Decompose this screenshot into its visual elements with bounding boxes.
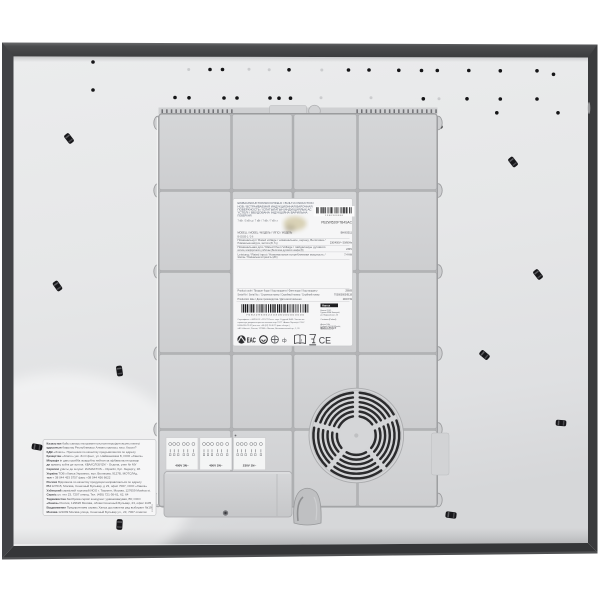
svg-text:«АО «Hansa», Россия, 127566 г.: «АО «Hansa», Россия, 127566 г. Москва, В…: [238, 327, 301, 330]
svg-text:ул. Варшавская, 25: ул. Варшавская, 25: [321, 315, 338, 317]
svg-text:Москва 121099 Москва улица, Со: Москва 121099 Москва улица, Сонечный Бул…: [47, 510, 147, 514]
svg-text:ЕАС: ЕАС: [247, 336, 256, 345]
svg-text:7 6 8 2 2 9 6 3 6 2 2 0 3 0 6: 7 6 8 2 2 9 6 3 6 2 2 0 3 0 6 0 0 0 0 0 …: [246, 314, 305, 316]
svg-text:400V 2N~: 400V 2N~: [209, 464, 223, 468]
svg-text:8-800-234-72-97 (или тел. +48: 8-800-234-72-97 (или тел. +48 (67) 25 46…: [238, 324, 290, 327]
svg-text:ф: ф: [282, 338, 287, 344]
svg-text:230V 1N~: 230V 1N~: [243, 464, 257, 468]
svg-text:Customer(Poland): Customer(Poland): [321, 318, 337, 321]
svg-text:BHI63511: BHI63511: [341, 231, 353, 235]
svg-text:Serial-Nr / Serial No. / Серия: Serial-Nr / Serial No. / Сериялык номер …: [238, 294, 321, 297]
svg-text:29/07/19: 29/07/19: [343, 298, 353, 301]
svg-text:ПОВЕРХНЯ: ПОВЕРХНЯ: [238, 215, 252, 218]
svg-text:Production date / Дата произво: Production date / Дата производства / Да…: [238, 298, 303, 301]
svg-text:В 60335-1 / 2-6: В 60335-1 / 2-6: [238, 236, 255, 238]
svg-text:Leistung / Rated input / Номин: Leistung / Rated input / Номинальная пот…: [238, 253, 326, 256]
svg-text:Номинальная для / Rated Oven V: Номинальная для / Rated Oven Voltage / п…: [238, 246, 327, 249]
svg-text:Жалпы / Номінальна потужність: Жалпы / Номінальна потужність (кВт): [238, 256, 278, 259]
svg-text:Made in Poland: Made in Poland: [321, 327, 337, 329]
svg-text:6019/20: 6019/20: [152, 503, 154, 512]
svg-text:230/400V~ 50/60Hz: 230/400V~ 50/60Hz: [330, 241, 353, 244]
svg-text:PBZWI520FTB4SAC: PBZWI520FTB4SAC: [321, 221, 352, 225]
svg-text:сервисную документацию выставл: сервисную документацию выставляем серт Г…: [238, 321, 306, 324]
svg-text:катэла, конфорочного, робочны: катэла, конфорочного, робочны (Величина …: [238, 249, 304, 252]
svg-text:Hansa: Hansa: [322, 304, 331, 308]
svg-text:400V 3N~: 400V 3N~: [175, 464, 189, 468]
svg-text:CE: CE: [319, 336, 331, 346]
svg-text:Product code / Продукт боды /: Product code / Продукт боды / Код продук…: [238, 289, 319, 292]
svg-text:Сертификат с 44/19-ОУ с РОСТ Р: Сертификат с 44/19-ОУ с РОСТ Росст. серт…: [238, 318, 305, 321]
svg-text:Номинальнуі / Rated voltage /: Номинальнуі / Rated voltage / номинально…: [238, 239, 326, 242]
svg-text:i: i: [301, 338, 302, 343]
svg-text:Номінальна напруга, частота (В: Номінальна напруга, частота (В, Гц): [238, 242, 278, 245]
svg-text:7,4 kW: 7,4 kW: [344, 254, 352, 257]
svg-text:T00000000/9119: T00000000/9119: [334, 294, 353, 297]
svg-text:230V: 230V: [346, 248, 352, 251]
svg-text:7 кВт / 5 кВт д / 7 кВт / 7 кВ: 7 кВт / 5 кВт д / 7 кВт / 7 кВт / 7 кВт …: [238, 220, 279, 223]
svg-text:29609: 29609: [345, 289, 352, 292]
svg-text:1 9 0 0 3 4 0 0 5 6: 1 9 0 0 3 4 0 0 5 6: [325, 215, 343, 217]
svg-text:MODELL / MODEL / МОДЕЛЬ / ҮЛГІ: MODELL / MODEL / МОДЕЛЬ / ҮЛГІСІ / МОДЕЛ…: [238, 232, 293, 235]
